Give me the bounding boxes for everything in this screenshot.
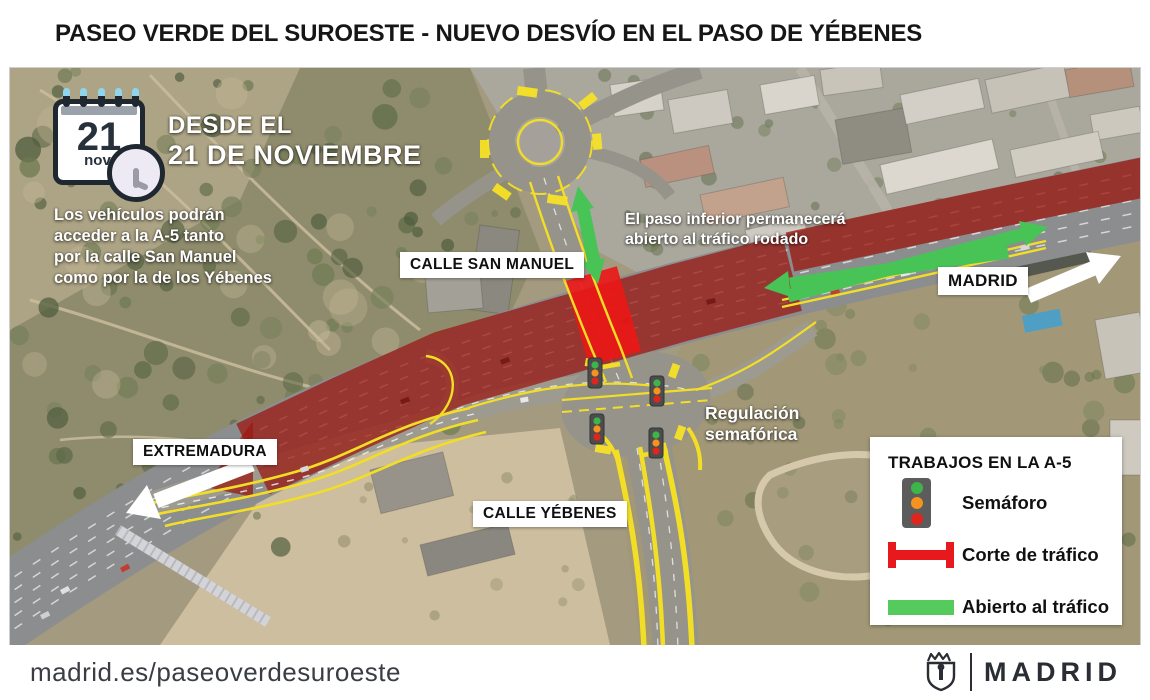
label-madrid: MADRID: [938, 267, 1028, 295]
date-heading-line1: DESDE EL: [168, 112, 292, 140]
madrid-logo-text: MADRID: [984, 657, 1122, 688]
calendar-icon: 21 nov.: [53, 88, 149, 198]
road-closed-bar-icon: [888, 542, 962, 568]
signal-regulation-note: Regulación semafórica: [705, 403, 799, 445]
legend-item-abierto: Abierto al tráfico: [870, 581, 1122, 633]
map-area: 21 nov. DESDE EL 21 DE NOVIEMBRE Los veh…: [10, 68, 1140, 645]
label-extremadura: EXTREMADURA: [133, 439, 277, 465]
label-calle-san-manuel: CALLE SAN MANUEL: [400, 252, 584, 278]
underpass-note: El paso inferior permanecerá abierto al …: [625, 210, 846, 250]
footer: madrid.es/paseoverdesuroeste MADRID: [0, 645, 1150, 700]
access-note: Los vehículos podrán acceder a la A-5 ta…: [54, 205, 272, 289]
open-traffic-bar-icon: [888, 600, 962, 615]
calendar-binding-rings: [63, 88, 139, 107]
date-heading-line2: 21 DE NOVIEMBRE: [168, 140, 422, 171]
infographic-page: PASEO VERDE DEL SUROESTE - NUEVO DESVÍO …: [0, 0, 1150, 700]
legend-item-semaforo: Semáforo: [870, 477, 1122, 529]
footer-url[interactable]: madrid.es/paseoverdesuroeste: [30, 657, 401, 688]
legend-title: TRABAJOS EN LA A-5: [888, 453, 1122, 473]
madrid-crest-icon: [924, 651, 958, 693]
legend-item-corte: Corte de tráfico: [870, 529, 1122, 581]
clock-icon: [107, 144, 165, 202]
madrid-logo: MADRID: [924, 651, 1122, 693]
traffic-light-icon: [888, 478, 962, 528]
page-title: PASEO VERDE DEL SUROESTE - NUEVO DESVÍO …: [55, 20, 922, 48]
map-legend: TRABAJOS EN LA A-5 Semáforo Corte de trá…: [870, 437, 1122, 625]
label-calle-yebenes: CALLE YÉBENES: [473, 501, 627, 527]
